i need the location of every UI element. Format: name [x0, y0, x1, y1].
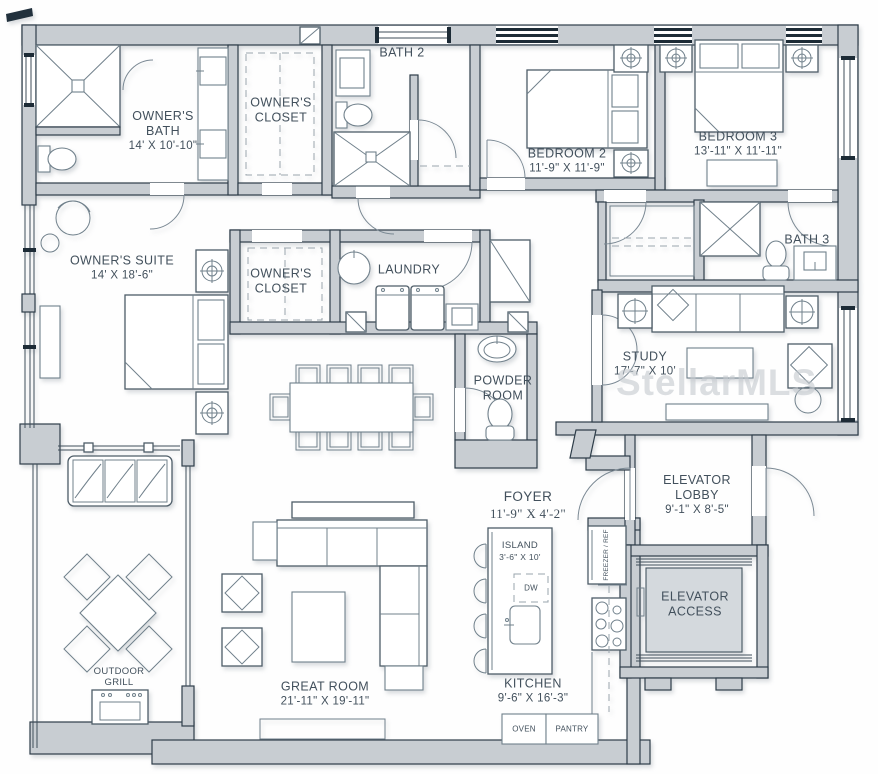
sofa-end-table-icon — [385, 666, 423, 690]
side-table-icon — [253, 522, 277, 560]
room-label-bath2: BATH 2 — [379, 46, 424, 61]
room-label-bedroom2: BEDROOM 2 11'-9" X 11'-9" — [528, 146, 607, 175]
room-label-elevator-lobby: ELEVATOR LOBBY 9'-1" X 8'-5" — [647, 473, 747, 517]
room-label-powder-room: POWDER ROOM — [458, 373, 548, 403]
room-label-laundry: LAUNDRY — [378, 263, 440, 278]
room-label-owners-closet-upper: OWNER'S CLOSET — [241, 95, 321, 125]
room-label-great-room: GREAT ROOM 21'-11" X 19'-11" — [281, 679, 370, 708]
stool-icon — [474, 614, 486, 638]
closet-shelving — [610, 206, 694, 276]
sofa-icon — [652, 286, 784, 332]
room-label-outdoor-grill: OUTDOOR GRILL — [79, 666, 159, 688]
sink-icon — [452, 308, 472, 325]
dining-table-icon — [290, 383, 413, 432]
room-label-owners-suite: OWNER'S SUITE 14' X 18'-6" — [70, 253, 174, 282]
watermark: StellarMLS — [616, 362, 878, 404]
stool-icon — [474, 544, 486, 568]
sink-icon — [510, 606, 540, 644]
label-oven: OVEN — [512, 724, 535, 733]
room-label-owners-closet-lower: OWNER'S CLOSET — [241, 266, 321, 296]
media-console-icon — [292, 502, 414, 518]
laundry-fixtures — [338, 240, 530, 332]
outdoor-table-icon — [80, 575, 156, 651]
room-label-owners-bath: OWNER'S BATH 14' X 10'-10" — [123, 109, 203, 153]
label-pantry: PANTRY — [556, 724, 589, 733]
toilet-icon — [766, 241, 786, 267]
room-label-bedroom3: BEDROOM 3 13'-11" X 11'-11" — [694, 129, 782, 158]
armchair-icon — [222, 628, 262, 666]
bath2-fixtures — [334, 50, 470, 186]
stool-icon — [474, 649, 486, 673]
sectional-sofa-icon — [277, 520, 427, 566]
console-icon — [666, 404, 768, 420]
room-label-bath3: BATH 3 — [784, 233, 829, 248]
room-label-foyer: FOYER 11'-9" X 4'-2" — [490, 489, 566, 521]
owners-suite-furniture — [40, 201, 228, 434]
floor-plan: OWNER'S BATH 14' X 10'-10" OWNER'S CLOSE… — [0, 0, 878, 774]
bedroom3-furniture — [660, 40, 818, 186]
dresser-icon — [40, 306, 60, 378]
armchair-icon — [222, 574, 262, 612]
room-label-island: ISLAND 3'-6" X 10' — [499, 540, 541, 562]
dining-furniture — [270, 365, 433, 450]
dresser-icon — [707, 160, 777, 186]
coffee-table-icon — [292, 592, 345, 662]
toilet-icon — [488, 399, 512, 429]
label-dishwasher: DW — [524, 583, 538, 592]
dryer-icon — [411, 286, 444, 330]
bench-icon — [260, 719, 385, 739]
armchair-icon — [56, 201, 90, 235]
room-label-kitchen: KITCHEN 9'-6" X 16'-3" — [498, 676, 568, 705]
side-table-icon — [41, 234, 59, 252]
room-label-elevator-access: ELEVATOR ACCESS — [650, 589, 740, 619]
stool-icon — [474, 579, 486, 603]
washer-icon — [376, 286, 409, 330]
label-freezer-ref: FREEZER / REF — [603, 529, 611, 580]
sink-icon — [340, 58, 364, 88]
